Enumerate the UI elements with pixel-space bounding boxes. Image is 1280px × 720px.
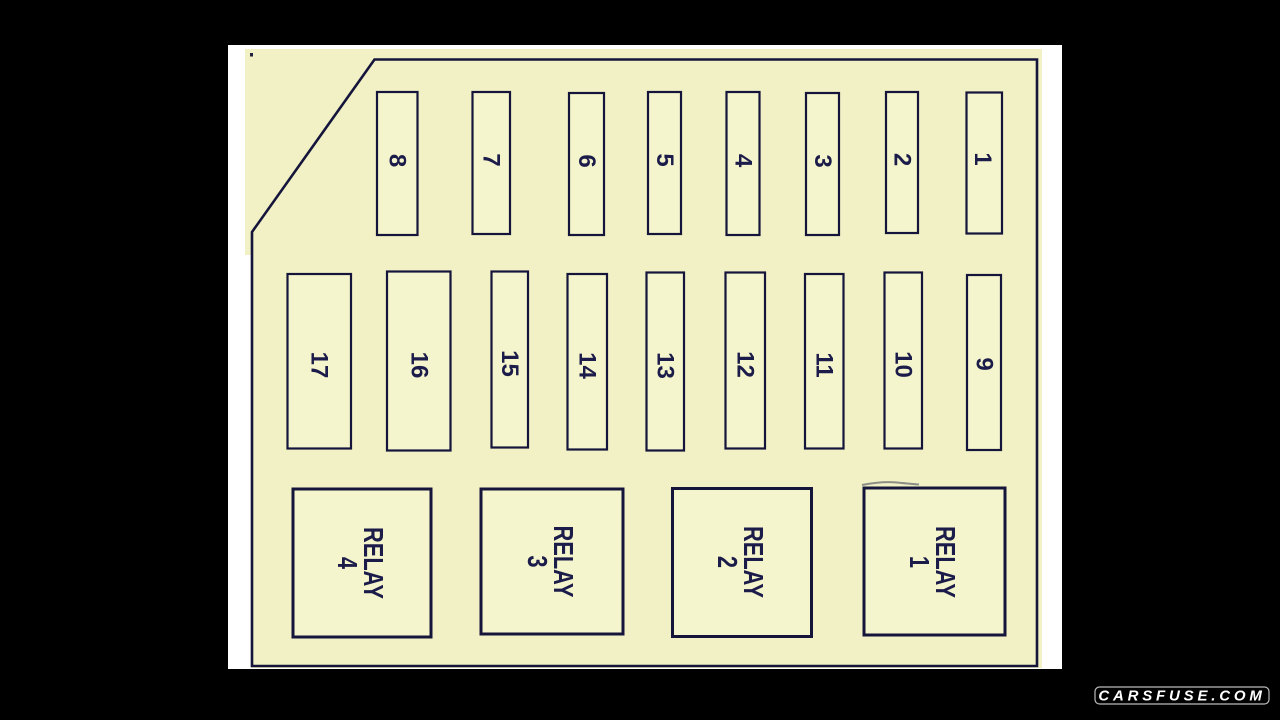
svg-text:10: 10 <box>890 351 917 378</box>
svg-text:8: 8 <box>384 154 411 167</box>
svg-text:9: 9 <box>971 357 998 370</box>
svg-text:11: 11 <box>811 352 838 377</box>
svg-text:15: 15 <box>496 350 523 377</box>
svg-text:7: 7 <box>478 153 505 166</box>
svg-text:2: 2 <box>711 556 742 568</box>
svg-text:13: 13 <box>652 352 679 379</box>
svg-text:1: 1 <box>903 556 934 568</box>
svg-text:16: 16 <box>406 352 433 379</box>
svg-text:14: 14 <box>574 352 601 379</box>
svg-text:5: 5 <box>651 153 678 166</box>
svg-text:3: 3 <box>809 154 836 167</box>
svg-text:12: 12 <box>732 351 759 378</box>
svg-text:6: 6 <box>573 154 600 167</box>
svg-text:1: 1 <box>969 152 996 165</box>
svg-text:4: 4 <box>331 557 362 569</box>
svg-text:CARSFUSE.COM: CARSFUSE.COM <box>1098 688 1265 705</box>
svg-text:4: 4 <box>730 154 757 168</box>
svg-text:17: 17 <box>306 352 333 379</box>
svg-text:3: 3 <box>521 555 552 567</box>
svg-text:2: 2 <box>889 153 916 166</box>
